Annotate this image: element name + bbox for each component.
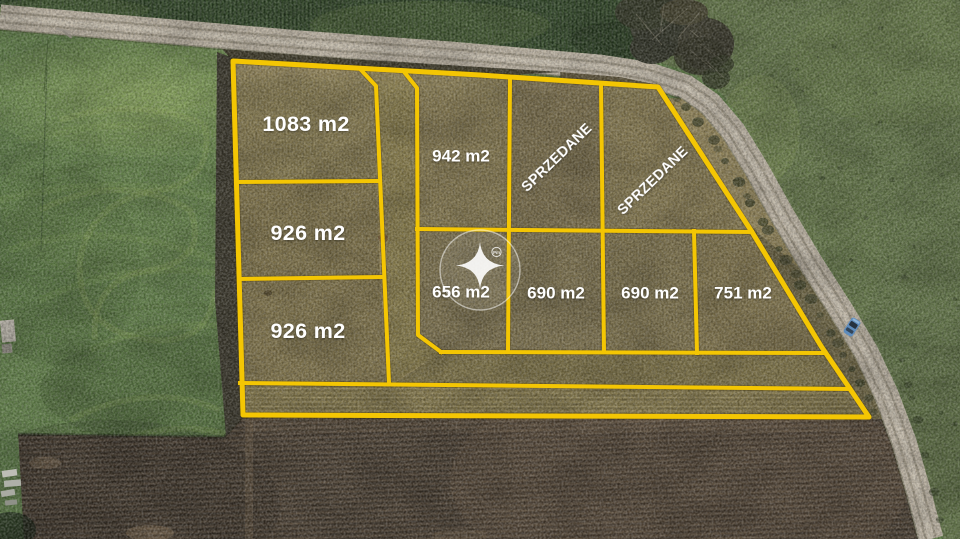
svg-text:942 m2: 942 m2 — [432, 147, 490, 166]
svg-text:926 m2: 926 m2 — [270, 221, 345, 245]
svg-text:690 m2: 690 m2 — [621, 284, 679, 303]
svg-text:926 m2: 926 m2 — [270, 319, 345, 343]
svg-text:751 m2: 751 m2 — [714, 284, 772, 303]
svg-text:690 m2: 690 m2 — [527, 284, 585, 303]
svg-text:Pm: Pm — [493, 250, 500, 255]
svg-text:1083 m2: 1083 m2 — [262, 112, 349, 136]
